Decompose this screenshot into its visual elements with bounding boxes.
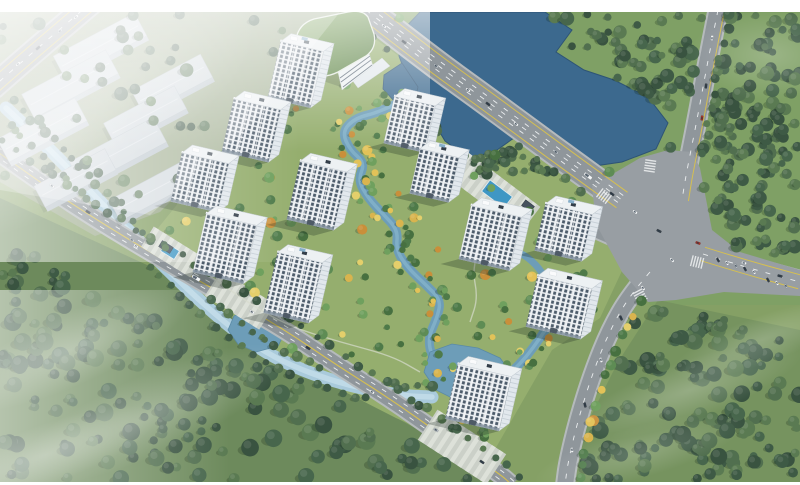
frame-top bbox=[0, 0, 800, 12]
car bbox=[701, 115, 704, 120]
car bbox=[705, 83, 708, 88]
aerial-masterplan-rendering: Aerial bird's-eye rendering of a residen… bbox=[0, 0, 800, 485]
rendering-canvas bbox=[0, 0, 800, 485]
